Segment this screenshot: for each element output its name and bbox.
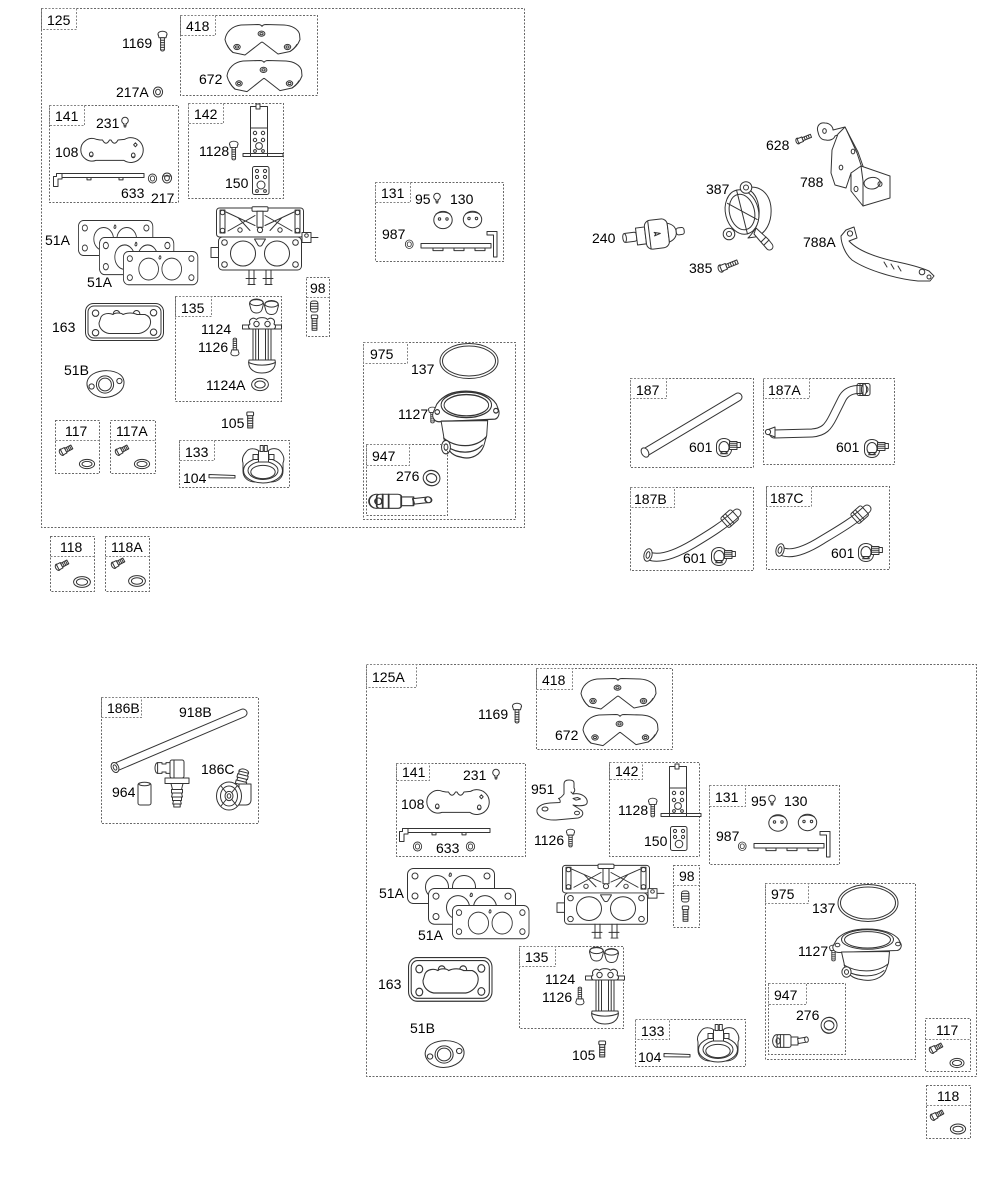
svg-text:135: 135 — [181, 300, 205, 316]
svg-text:130: 130 — [450, 191, 474, 207]
svg-text:1124A: 1124A — [206, 377, 246, 393]
svg-text:150: 150 — [644, 833, 668, 849]
svg-text:187A: 187A — [768, 382, 801, 398]
svg-text:918B: 918B — [179, 704, 212, 720]
svg-text:108: 108 — [401, 796, 425, 812]
svg-text:276: 276 — [796, 1007, 820, 1023]
svg-text:231: 231 — [463, 767, 487, 783]
svg-text:1128: 1128 — [618, 802, 648, 818]
svg-text:217: 217 — [151, 190, 175, 206]
svg-text:104: 104 — [638, 1049, 662, 1065]
svg-text:163: 163 — [52, 319, 76, 335]
svg-text:947: 947 — [774, 987, 798, 1003]
svg-text:51B: 51B — [64, 362, 89, 378]
svg-text:108: 108 — [55, 144, 79, 160]
svg-text:137: 137 — [411, 361, 435, 377]
svg-text:51A: 51A — [418, 927, 444, 943]
svg-text:95: 95 — [751, 793, 767, 809]
svg-text:95: 95 — [415, 191, 431, 207]
svg-text:131: 131 — [715, 789, 739, 805]
svg-text:187C: 187C — [770, 490, 803, 506]
svg-text:788A: 788A — [803, 234, 836, 250]
svg-text:217A: 217A — [116, 84, 149, 100]
svg-text:118: 118 — [937, 1088, 960, 1104]
svg-text:118A: 118A — [111, 539, 143, 555]
svg-text:1169: 1169 — [478, 706, 508, 722]
svg-text:104: 104 — [183, 470, 207, 486]
svg-text:186B: 186B — [107, 700, 140, 716]
svg-text:142: 142 — [194, 106, 218, 122]
svg-text:117A: 117A — [116, 423, 148, 439]
svg-text:947: 947 — [372, 448, 396, 464]
svg-text:1126: 1126 — [542, 989, 572, 1005]
svg-text:105: 105 — [572, 1047, 596, 1063]
svg-text:1127: 1127 — [798, 943, 828, 959]
svg-text:133: 133 — [641, 1023, 665, 1039]
svg-text:51B: 51B — [410, 1020, 435, 1036]
svg-text:633: 633 — [436, 840, 460, 856]
svg-text:964: 964 — [112, 784, 136, 800]
svg-text:788: 788 — [800, 174, 824, 190]
svg-text:951: 951 — [531, 781, 555, 797]
svg-text:387: 387 — [706, 181, 730, 197]
svg-text:135: 135 — [525, 949, 549, 965]
svg-text:240: 240 — [592, 230, 616, 246]
svg-text:51A: 51A — [87, 274, 113, 290]
svg-text:975: 975 — [370, 346, 394, 362]
svg-text:117: 117 — [65, 423, 88, 439]
svg-text:150: 150 — [225, 175, 249, 191]
svg-text:987: 987 — [716, 828, 740, 844]
svg-text:98: 98 — [310, 280, 326, 296]
svg-text:276: 276 — [396, 468, 420, 484]
svg-text:117: 117 — [936, 1022, 959, 1038]
svg-text:118: 118 — [60, 539, 83, 555]
svg-text:142: 142 — [615, 763, 639, 779]
svg-text:1128: 1128 — [199, 143, 229, 159]
svg-text:1124: 1124 — [545, 971, 575, 987]
svg-text:231: 231 — [96, 115, 120, 131]
svg-text:131: 131 — [381, 185, 405, 201]
svg-text:187B: 187B — [634, 491, 667, 507]
svg-text:987: 987 — [382, 226, 406, 242]
svg-text:130: 130 — [784, 793, 808, 809]
svg-text:141: 141 — [402, 764, 426, 780]
svg-text:672: 672 — [555, 727, 579, 743]
svg-text:1126: 1126 — [198, 339, 228, 355]
svg-text:133: 133 — [185, 444, 209, 460]
svg-text:51A: 51A — [45, 232, 71, 248]
svg-text:633: 633 — [121, 185, 145, 201]
svg-text:186C: 186C — [201, 761, 234, 777]
svg-text:1169: 1169 — [122, 35, 152, 51]
svg-text:601: 601 — [683, 550, 707, 566]
svg-text:1126: 1126 — [534, 832, 564, 848]
svg-text:137: 137 — [812, 900, 836, 916]
svg-text:628: 628 — [766, 137, 790, 153]
svg-text:601: 601 — [831, 545, 855, 561]
svg-text:975: 975 — [771, 886, 795, 902]
svg-text:163: 163 — [378, 976, 402, 992]
svg-text:1127: 1127 — [398, 406, 428, 422]
svg-text:98: 98 — [679, 868, 695, 884]
svg-text:601: 601 — [689, 439, 713, 455]
svg-text:105: 105 — [221, 415, 245, 431]
svg-text:418: 418 — [186, 18, 210, 34]
svg-text:125: 125 — [47, 12, 71, 28]
svg-text:418: 418 — [542, 672, 566, 688]
svg-text:672: 672 — [199, 71, 223, 87]
svg-text:51A: 51A — [379, 885, 405, 901]
svg-text:1124: 1124 — [201, 321, 231, 337]
svg-text:125A: 125A — [372, 669, 405, 685]
svg-text:141: 141 — [55, 108, 79, 124]
svg-text:385: 385 — [689, 260, 713, 276]
svg-text:187: 187 — [636, 382, 660, 398]
svg-text:601: 601 — [836, 439, 860, 455]
